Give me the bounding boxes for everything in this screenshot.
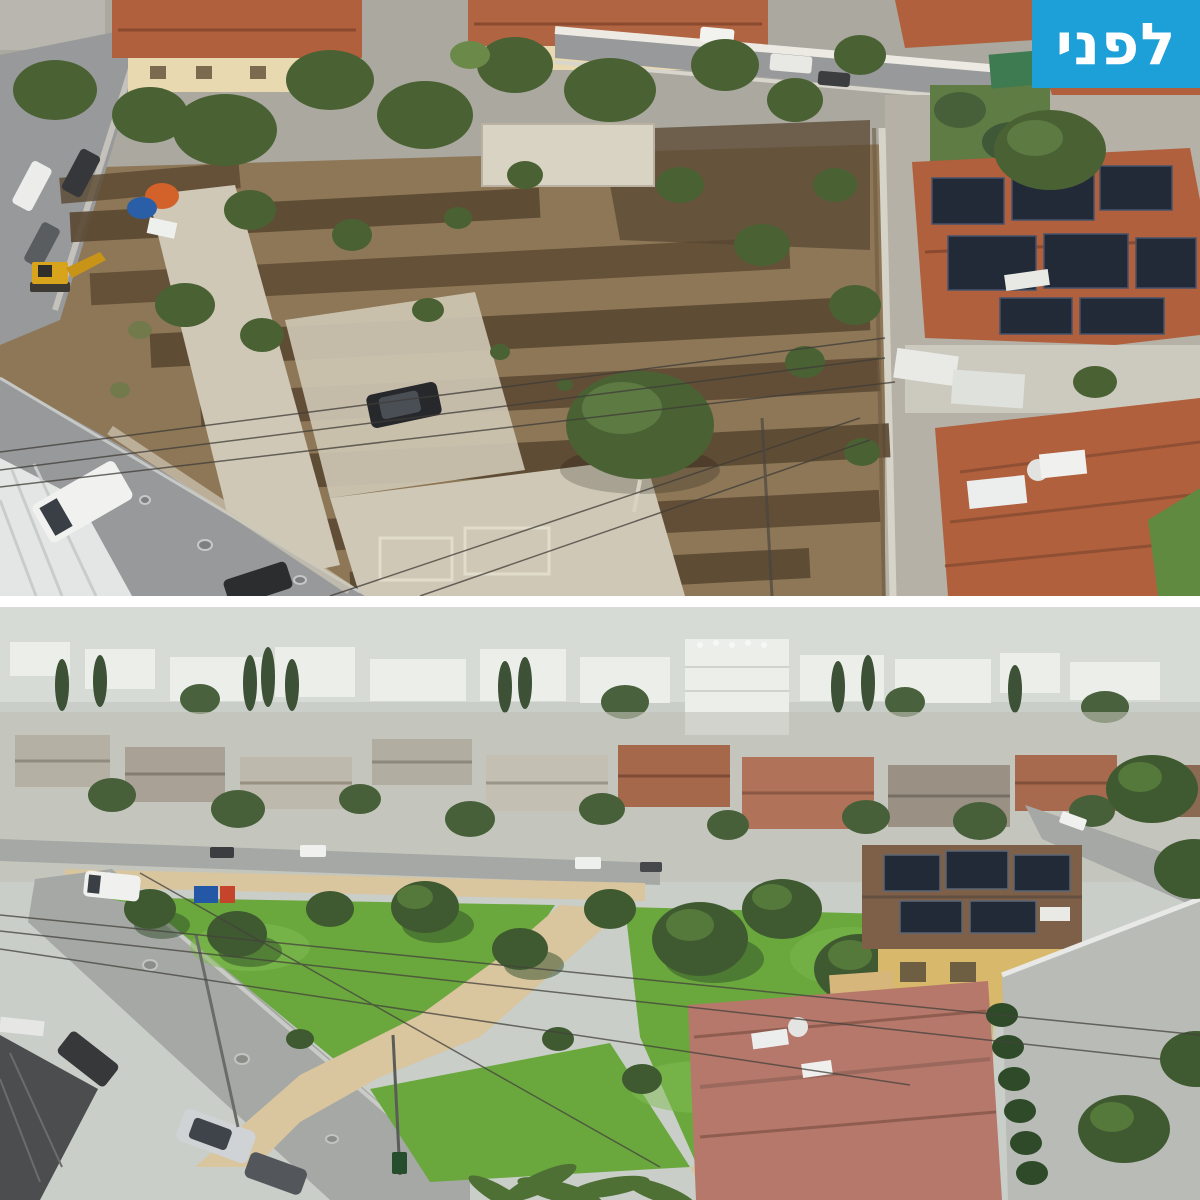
after-aerial-scene xyxy=(0,607,1200,1200)
before-label-badge: לפני xyxy=(1032,0,1200,88)
photo-divider xyxy=(0,596,1200,607)
before-label: לפני xyxy=(1056,15,1177,73)
corner-tree-cluster xyxy=(994,110,1106,190)
trash-bin xyxy=(392,1152,407,1174)
before-aerial-scene xyxy=(0,0,1200,596)
after-photo: אחרי xyxy=(0,607,1200,1200)
before-after-comparison: לפני xyxy=(0,0,1200,1200)
blue-dumpster xyxy=(194,886,218,903)
palm-tree xyxy=(450,41,490,69)
before-photo: לפני xyxy=(0,0,1200,596)
red-container xyxy=(220,886,235,903)
